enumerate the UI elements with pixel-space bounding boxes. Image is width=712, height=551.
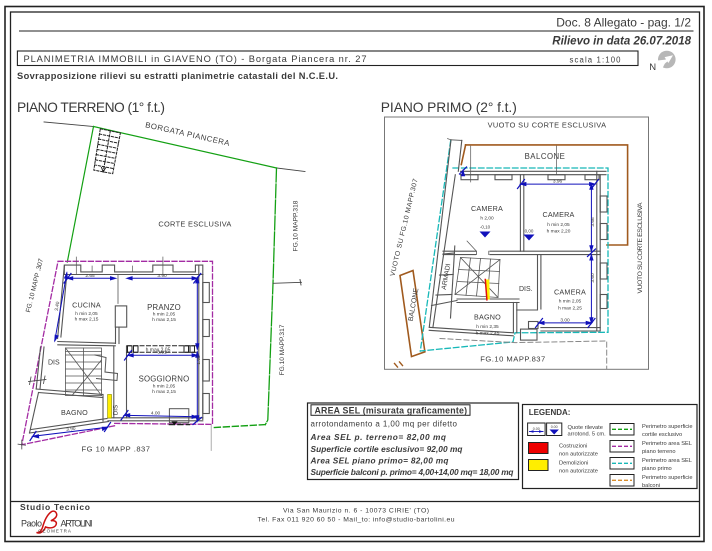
svg-text:PLANIMETRIA IMMOBILI in GIAVEN: PLANIMETRIA IMMOBILI in GIAVENO (TO) - B… — [24, 54, 367, 64]
svg-text:Perimetro superficie: Perimetro superficie — [642, 475, 693, 481]
svg-text:0.00: 0.00 — [533, 427, 540, 431]
svg-text:Perimetro area SEL: Perimetro area SEL — [642, 458, 692, 464]
svg-text:FG.10 MAPP.837: FG.10 MAPP.837 — [480, 355, 546, 364]
svg-text:arrotondamento a 1,00 mq per d: arrotondamento a 1,00 mq per difetto — [311, 419, 458, 428]
svg-text:3.91: 3.91 — [157, 350, 167, 356]
svg-text:FG.10 MAPP.317: FG.10 MAPP.317 — [279, 324, 286, 375]
svg-text:piano primo: piano primo — [642, 466, 672, 472]
svg-text:VUOTO SU CORTE ESCLUSIVA: VUOTO SU CORTE ESCLUSIVA — [488, 120, 607, 129]
svg-text:SOGGIORNO: SOGGIORNO — [139, 374, 190, 383]
svg-text:DIS: DIS — [48, 360, 60, 367]
svg-text:Demolizioni: Demolizioni — [559, 461, 588, 467]
svg-text:VUOTO SU CORTE ESCLUSIVA: VUOTO SU CORTE ESCLUSIVA — [637, 202, 644, 293]
svg-text:GEOMETRA: GEOMETRA — [38, 529, 72, 534]
svg-text:Costruzioni: Costruzioni — [559, 444, 587, 450]
svg-text:3.60: 3.60 — [590, 273, 596, 283]
svg-text:h min 2,05: h min 2,05 — [153, 312, 176, 318]
svg-text:h min 2,05: h min 2,05 — [559, 299, 582, 305]
svg-text:BAGNO: BAGNO — [61, 408, 88, 417]
svg-text:h max 2,20: h max 2,20 — [547, 229, 571, 235]
svg-text:PRANZO: PRANZO — [147, 303, 181, 312]
svg-text:DIS.: DIS. — [519, 286, 533, 293]
svg-text:Superficie cortile esclusivo=: Superficie cortile esclusivo= 92,00 mq — [311, 444, 463, 454]
svg-text:CORTE ESCLUSIVA: CORTE ESCLUSIVA — [158, 220, 231, 229]
svg-text:Via San Maurizio n. 6 - 10073: Via San Maurizio n. 6 - 10073 CIRIE' (TO… — [283, 508, 429, 515]
svg-text:non autorizzate: non autorizzate — [559, 452, 598, 458]
svg-text:Tel. Fax 011 920 60 50 - Mail_: Tel. Fax 011 920 60 50 - Mail_to: info@s… — [258, 517, 455, 524]
svg-text:balconi: balconi — [642, 483, 660, 489]
svg-text:2.65: 2.65 — [85, 273, 95, 279]
svg-text:CAMERA: CAMERA — [554, 288, 586, 297]
svg-text:3.66: 3.66 — [590, 217, 596, 227]
svg-text:PIANO TERRENO (1° f.t.): PIANO TERRENO (1° f.t.) — [17, 100, 165, 115]
svg-text:3.96: 3.96 — [553, 179, 563, 185]
svg-text:h 2,00: h 2,00 — [480, 216, 494, 222]
svg-text:h min 2,05: h min 2,05 — [75, 311, 98, 317]
svg-text:Doc. 8 Allegato - pag. 1/2: Doc. 8 Allegato - pag. 1/2 — [556, 16, 691, 30]
svg-text:LEGENDA:: LEGENDA: — [529, 408, 571, 417]
svg-text:Paolo: Paolo — [21, 519, 42, 529]
svg-text:BAGNO: BAGNO — [474, 313, 501, 322]
svg-text:Quote rilevate: Quote rilevate — [568, 425, 603, 431]
svg-text:h max 2,45: h max 2,45 — [476, 331, 500, 337]
svg-text:3.90: 3.90 — [157, 273, 167, 279]
svg-text:Sovrapposizione rilievi su est: Sovrapposizione rilievi su estratti plan… — [17, 71, 338, 81]
svg-text:Perimetro area SEL: Perimetro area SEL — [642, 441, 692, 447]
svg-text:h max 2,15: h max 2,15 — [75, 317, 99, 323]
svg-text:h max 2,15: h max 2,15 — [152, 389, 176, 395]
svg-text:scala 1:100: scala 1:100 — [570, 55, 622, 64]
svg-text:Area SEL p. terreno= 82,00 mq: Area SEL p. terreno= 82,00 mq — [310, 432, 447, 442]
svg-text:FG.10 MAPP.318: FG.10 MAPP.318 — [293, 200, 300, 251]
svg-text:3.90: 3.90 — [66, 426, 76, 433]
svg-text:BALCONE: BALCONE — [525, 152, 566, 161]
svg-text:FG 10 MAPP .837: FG 10 MAPP .837 — [82, 445, 151, 454]
svg-text:-0,10: -0,10 — [480, 225, 491, 230]
svg-text:4.00: 4.00 — [151, 410, 161, 416]
svg-text:Superficie balconi p. primo= 4: Superficie balconi p. primo= 4,00+14,00 … — [311, 467, 514, 477]
svg-text:1.98: 1.98 — [196, 355, 202, 365]
svg-text:h max 2,15: h max 2,15 — [152, 317, 176, 323]
svg-text:Perimetro superficie: Perimetro superficie — [642, 424, 693, 430]
svg-text:Area SEL piano primo= 82,00 mq: Area SEL piano primo= 82,00 mq — [310, 456, 449, 466]
svg-text:N: N — [649, 62, 656, 73]
svg-text:CAMERA: CAMERA — [471, 204, 503, 213]
svg-text:ARTOLINI: ARTOLINI — [61, 519, 93, 529]
svg-text:cortile esclusivo: cortile esclusivo — [642, 432, 682, 438]
svg-text:3.00: 3.00 — [560, 317, 570, 323]
svg-text:non autorizzate: non autorizzate — [559, 469, 598, 475]
svg-text:h min 2,35: h min 2,35 — [476, 324, 499, 330]
svg-text:arrotond. 5 cm.: arrotond. 5 cm. — [568, 432, 607, 438]
svg-text:Studio Tecnico: Studio Tecnico — [20, 502, 91, 512]
svg-text:h min 2,05: h min 2,05 — [153, 383, 176, 389]
svg-text:0.00: 0.00 — [551, 425, 558, 429]
svg-text:DIS: DIS — [113, 405, 120, 415]
svg-text:h min 2,05: h min 2,05 — [547, 222, 570, 228]
svg-text:CAMERA: CAMERA — [543, 210, 575, 219]
svg-text:CUCINA: CUCINA — [72, 301, 101, 310]
svg-text:piano terreno: piano terreno — [642, 449, 676, 455]
svg-text:Rilievo in data 26.07.2018: Rilievo in data 26.07.2018 — [552, 36, 691, 48]
svg-text:PIANO PRIMO (2° f.t.): PIANO PRIMO (2° f.t.) — [381, 100, 517, 115]
svg-text:h max 2,25: h max 2,25 — [558, 306, 582, 312]
svg-text:0,00: 0,00 — [525, 229, 534, 234]
svg-text:AREA SEL (misurata graficamen: AREA SEL (misurata graficamente) — [315, 405, 468, 415]
